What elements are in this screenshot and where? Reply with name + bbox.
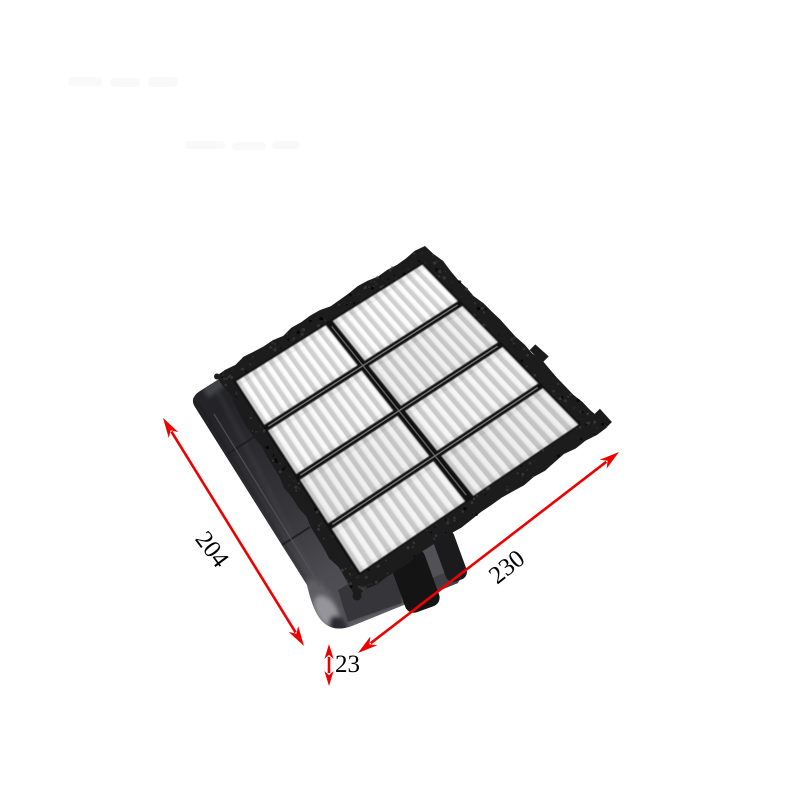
- svg-text:23: 23: [335, 651, 360, 678]
